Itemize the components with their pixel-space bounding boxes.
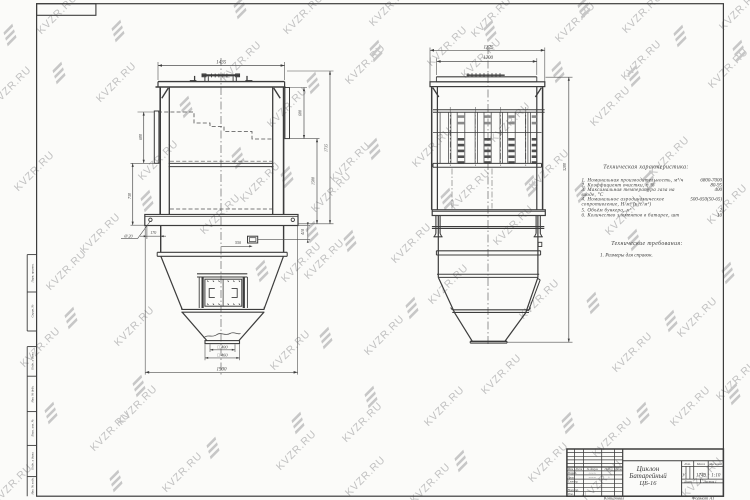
svg-text:1200: 1200 — [483, 56, 494, 61]
svg-text:сопротивление, Н/м² (кгс/м²): сопротивление, Н/м² (кгс/м²) — [582, 202, 652, 208]
svg-text:600: 600 — [298, 110, 303, 116]
svg-text:Циклон: Циклон — [636, 465, 660, 473]
svg-text:Справ. №: Справ. № — [31, 305, 35, 318]
svg-text:Подп. и дата: Подп. и дата — [31, 452, 35, 471]
svg-text:500-650(50-65): 500-650(50-65) — [690, 198, 722, 203]
svg-text:Ø 20: Ø 20 — [123, 233, 133, 238]
svg-text:Взам. инв. №: Взам. инв. № — [31, 419, 35, 436]
svg-text:Т.контр.: Т.контр. — [568, 480, 579, 484]
svg-text:550: 550 — [235, 240, 241, 245]
svg-text:1:10: 1:10 — [711, 473, 721, 478]
svg-text:730: 730 — [127, 193, 132, 199]
svg-text:Технические требования:: Технические требования: — [611, 240, 683, 247]
svg-text:Формат А1: Формат А1 — [692, 495, 715, 500]
svg-text:1500: 1500 — [311, 177, 316, 185]
svg-text:Инв. № дубл.: Инв. № дубл. — [31, 385, 35, 403]
svg-text:3200: 3200 — [562, 163, 567, 171]
svg-text:1735: 1735 — [324, 144, 329, 152]
svg-text:Масштаб: Масштаб — [708, 462, 722, 466]
svg-text:1435: 1435 — [216, 60, 227, 65]
svg-text:Подп. и дата: Подп. и дата — [31, 352, 35, 371]
svg-text:Утв.: Утв. — [568, 492, 574, 496]
svg-text:6. Количество элементов в б: 6. Количество элементов в батарее, шт — [582, 213, 680, 218]
svg-text:1. Размеры для справок.: 1. Размеры для справок. — [600, 252, 653, 259]
svg-text:У: У — [682, 472, 686, 477]
svg-text:16: 16 — [717, 213, 723, 218]
svg-text:ЦБ-16: ЦБ-16 — [639, 480, 658, 487]
svg-text:1325: 1325 — [484, 45, 495, 50]
svg-text:410: 410 — [301, 229, 305, 235]
svg-text:170: 170 — [150, 230, 156, 235]
svg-text:∼∼∼: ∼∼∼ — [588, 475, 596, 479]
svg-text:1900: 1900 — [217, 368, 228, 373]
svg-text:Дата: Дата — [614, 467, 622, 471]
svg-text:1749: 1749 — [696, 473, 707, 478]
svg-text:Лит.: Лит. — [683, 462, 691, 466]
svg-text:600: 600 — [138, 134, 143, 140]
svg-text:□ 460: □ 460 — [217, 353, 228, 358]
svg-text:Инв. № подл.: Инв. № подл. — [31, 477, 35, 495]
svg-text:Перв. примен.: Перв. примен. — [31, 263, 35, 283]
svg-text:□ 400: □ 400 — [217, 345, 228, 350]
svg-text:400: 400 — [715, 188, 723, 193]
svg-text:Техническая характеристика:: Техническая характеристика: — [603, 165, 689, 171]
svg-text:Копировал: Копировал — [603, 495, 625, 500]
svg-text:Подп.: Подп. — [603, 467, 611, 471]
svg-text:Масса: Масса — [696, 462, 706, 466]
